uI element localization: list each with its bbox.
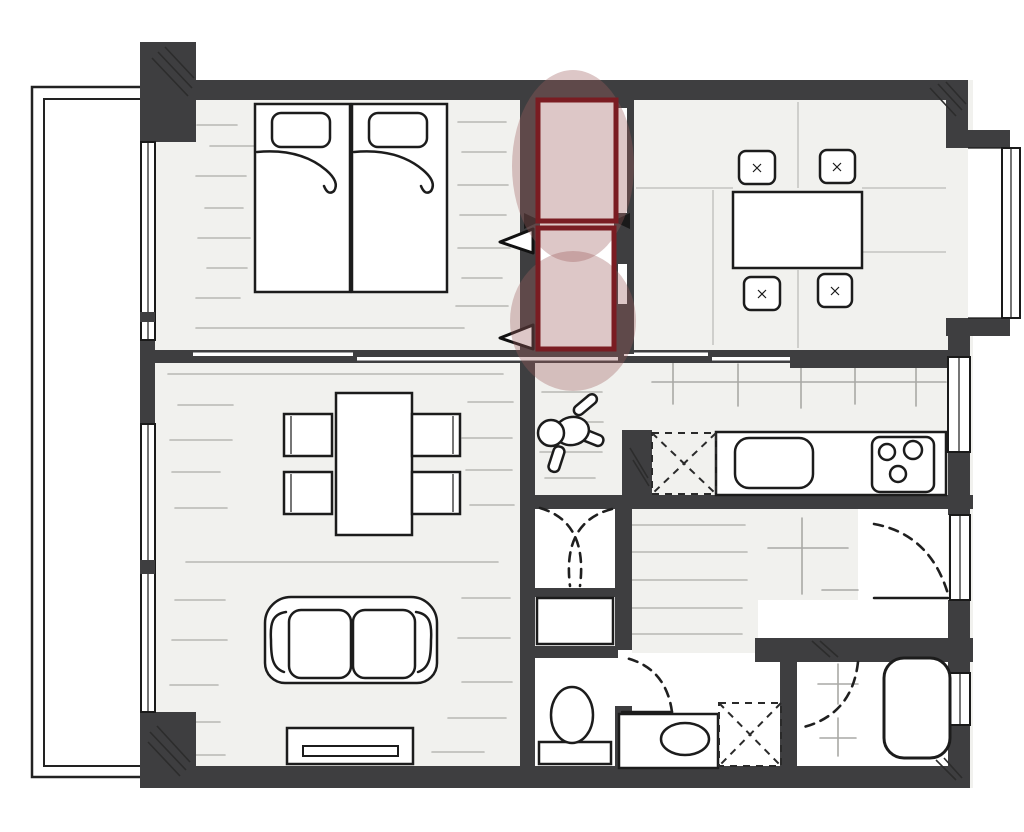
sliding-door-panel: [193, 353, 353, 357]
toilet-bowl: [551, 687, 593, 743]
sliding-door-panel: [624, 353, 708, 357]
toilet-tank: [539, 742, 611, 764]
sofa-cushion: [289, 610, 351, 678]
entry-floor-lower: [758, 600, 858, 638]
dining-table: [733, 192, 862, 268]
pillow-right: [369, 113, 427, 147]
dining-chair: [820, 150, 855, 183]
wall-kitchen-stub: [622, 430, 652, 498]
sofa: [265, 597, 437, 683]
bay-window-stub-top: [946, 130, 1010, 148]
entry-floor: [858, 508, 948, 638]
sofa-cushion: [353, 610, 415, 678]
wall-kitchen-south: [648, 495, 973, 509]
sliding-door-dining[interactable]: [618, 350, 792, 363]
kitchen-sink: [735, 438, 813, 488]
living-chair: [412, 414, 460, 456]
living-table: [336, 393, 412, 535]
balcony-deck: [45, 100, 140, 765]
cabinet: [537, 598, 613, 644]
vanity-sink: [661, 723, 709, 755]
living-chair: [284, 472, 332, 514]
entry-closet-floor: [535, 509, 615, 588]
bathtub: [884, 658, 950, 758]
wall-left-mid: [140, 340, 155, 424]
sliding-door-panel: [712, 357, 790, 361]
dining-chair: [739, 151, 775, 184]
living-chair: [412, 472, 460, 514]
wall-living-hall-divider: [520, 362, 535, 768]
wall-cabinet-top: [520, 588, 618, 597]
living-chair: [284, 414, 332, 456]
pillow-left: [272, 113, 330, 147]
wall-toilet-top: [520, 646, 618, 658]
bay-window-stub-bottom: [946, 318, 1010, 336]
dining-chair: [744, 277, 780, 310]
wall-bottom: [190, 766, 970, 788]
floor-plan: [0, 0, 1024, 832]
wall-right-mid3: [948, 600, 970, 675]
bedroom-window-mullion: [140, 312, 155, 322]
living-window-mullion: [140, 560, 155, 574]
person-head: [538, 420, 564, 446]
burner: [890, 466, 906, 482]
balcony: [32, 87, 142, 777]
dining-chair: [818, 274, 852, 307]
tv-board: [287, 728, 413, 764]
wall-column-top-left: [140, 42, 196, 142]
wall-washroom-bath-divider: [780, 648, 797, 768]
bay-window-floor: [968, 148, 1002, 318]
highlight-annotation[interactable]: [510, 70, 636, 391]
wall-under-dining: [790, 350, 970, 368]
bedroom: [255, 104, 447, 292]
hall-cabinet: [537, 598, 613, 644]
highlight-glow-lower: [510, 251, 636, 391]
burner: [879, 444, 895, 460]
burner: [904, 441, 922, 459]
